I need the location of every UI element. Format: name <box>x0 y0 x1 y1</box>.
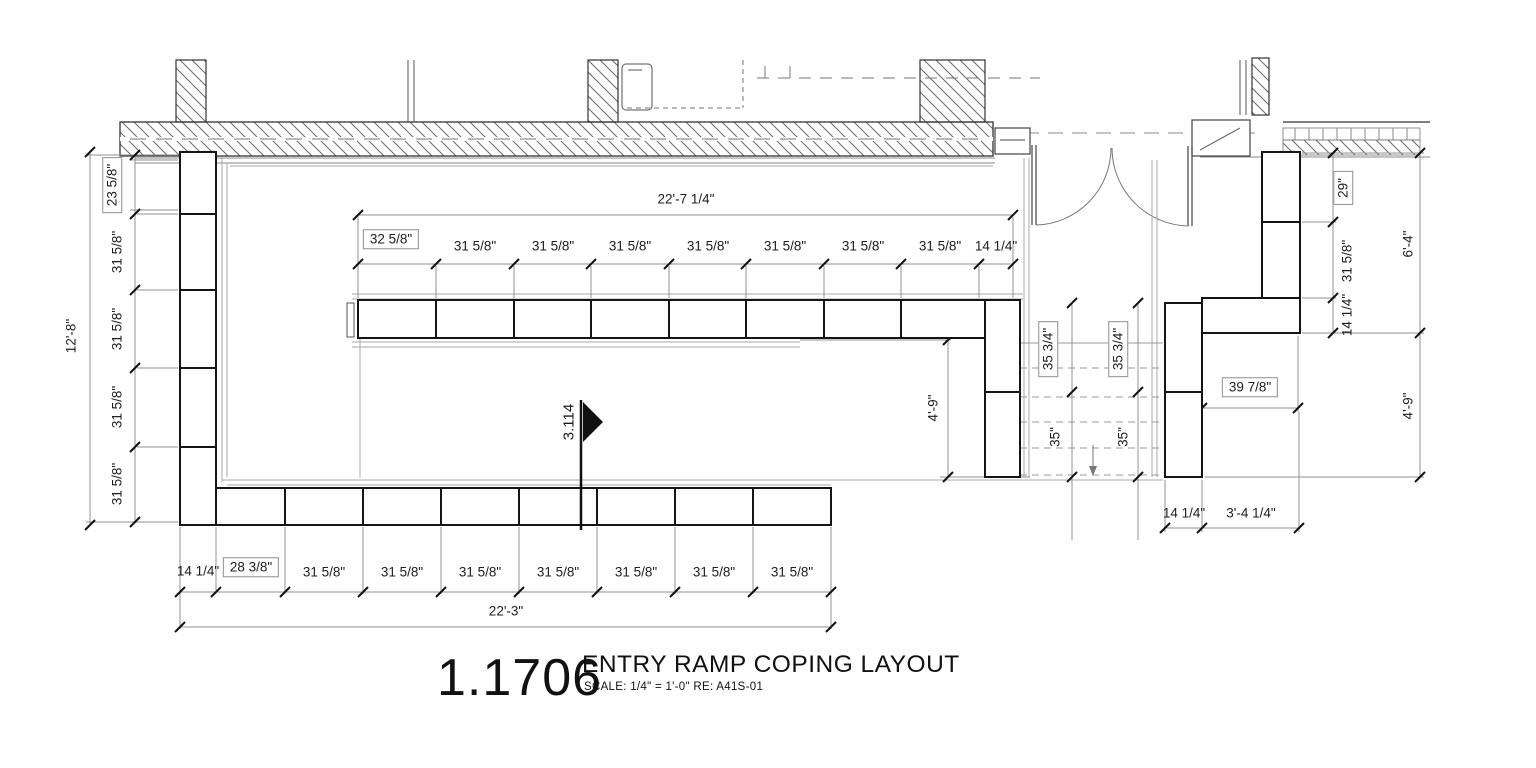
dim-bottom-seg-8: 31 5/8" <box>771 565 813 579</box>
dim-bottom-seg-6: 31 5/8" <box>615 565 657 579</box>
dim-bottom-seg-3: 31 5/8" <box>381 565 423 579</box>
dim-bottom-seg-7: 31 5/8" <box>693 565 735 579</box>
dim-top-seg-5: 31 5/8" <box>764 239 806 253</box>
coping-right-column <box>1262 152 1300 298</box>
double-door <box>995 120 1255 226</box>
marker-flag-icon <box>583 402 603 442</box>
coping-middle-row <box>358 300 985 338</box>
dim-right-inner-1: 31 5/8" <box>1340 240 1354 282</box>
coping-left-column <box>180 152 216 525</box>
dim-top-overall: 22'-7 1/4" <box>658 192 715 206</box>
dim-left-seg-0: 23 5/8" <box>102 157 122 213</box>
dim-stair-left-height: 4'-9" <box>926 395 940 422</box>
dim-top-seg-2: 31 5/8" <box>532 239 574 253</box>
dim-top-seg-4: 31 5/8" <box>687 239 729 253</box>
dim-top-seg-8: 14 1/4" <box>975 239 1017 253</box>
dim-bottom-seg-0: 14 1/4" <box>177 564 219 578</box>
dim-step-return: 39 7/8" <box>1222 377 1278 397</box>
elevation-marker-label: 3.114 <box>562 404 577 440</box>
dim-stair-run-left-lower: 35" <box>1048 427 1062 447</box>
dim-stair-run-right-lower: 35" <box>1116 427 1130 447</box>
dim-top-seg-0: 32 5/8" <box>363 229 419 249</box>
coping-stair-left-cheek <box>985 300 1020 477</box>
dim-bottom-right-1: 3'-4 1/4" <box>1226 506 1275 520</box>
dim-bottom-seg-5: 31 5/8" <box>537 565 579 579</box>
dim-right-outer-1: 4'-9" <box>1401 393 1415 420</box>
dim-right-inner-0: 29" <box>1333 171 1353 205</box>
coping-step-return <box>1202 298 1300 333</box>
drawing-title: ENTRY RAMP COPING LAYOUT <box>582 651 960 679</box>
dim-bottom-seg-2: 31 5/8" <box>303 565 345 579</box>
dim-right-inner-2: 14 1/4" <box>1340 294 1354 336</box>
dim-left-seg-3: 31 5/8" <box>110 386 124 428</box>
dim-top-seg-6: 31 5/8" <box>842 239 884 253</box>
dim-bottom-seg-4: 31 5/8" <box>459 565 501 579</box>
dim-bottom-right-0: 14 1/4" <box>1163 506 1205 520</box>
dim-bottom-seg-1: 28 3/8" <box>223 557 279 577</box>
dim-stair-run-left-upper: 35 3/4" <box>1038 321 1058 377</box>
dim-bottom-overall: 22'-3" <box>489 604 523 618</box>
drawing-number: 1.1706 <box>437 648 602 708</box>
dim-top-seg-3: 31 5/8" <box>609 239 651 253</box>
dim-top-seg-7: 31 5/8" <box>919 239 961 253</box>
dim-stair-run-right-upper: 35 3/4" <box>1108 321 1128 377</box>
dim-left-overall: 12'-8" <box>64 319 78 353</box>
coping-stair-right-cheek <box>1165 303 1202 477</box>
coping-stones <box>180 152 1300 525</box>
dim-right-outer-0: 6'-4" <box>1401 231 1415 258</box>
dim-top-seg-1: 31 5/8" <box>454 239 496 253</box>
dim-left-seg-2: 31 5/8" <box>110 308 124 350</box>
stairs <box>1020 158 1163 477</box>
dim-left-seg-4: 31 5/8" <box>110 463 124 505</box>
drawing-scale-note: SCALE: 1/4" = 1'-0" RE: A41S-01 <box>584 681 763 693</box>
dim-left-seg-1: 31 5/8" <box>110 231 124 273</box>
coping-bottom-row <box>216 488 831 525</box>
drawing-sheet: 22'-7 1/4" 32 5/8" 31 5/8" 31 5/8" 31 5/… <box>0 0 1536 768</box>
